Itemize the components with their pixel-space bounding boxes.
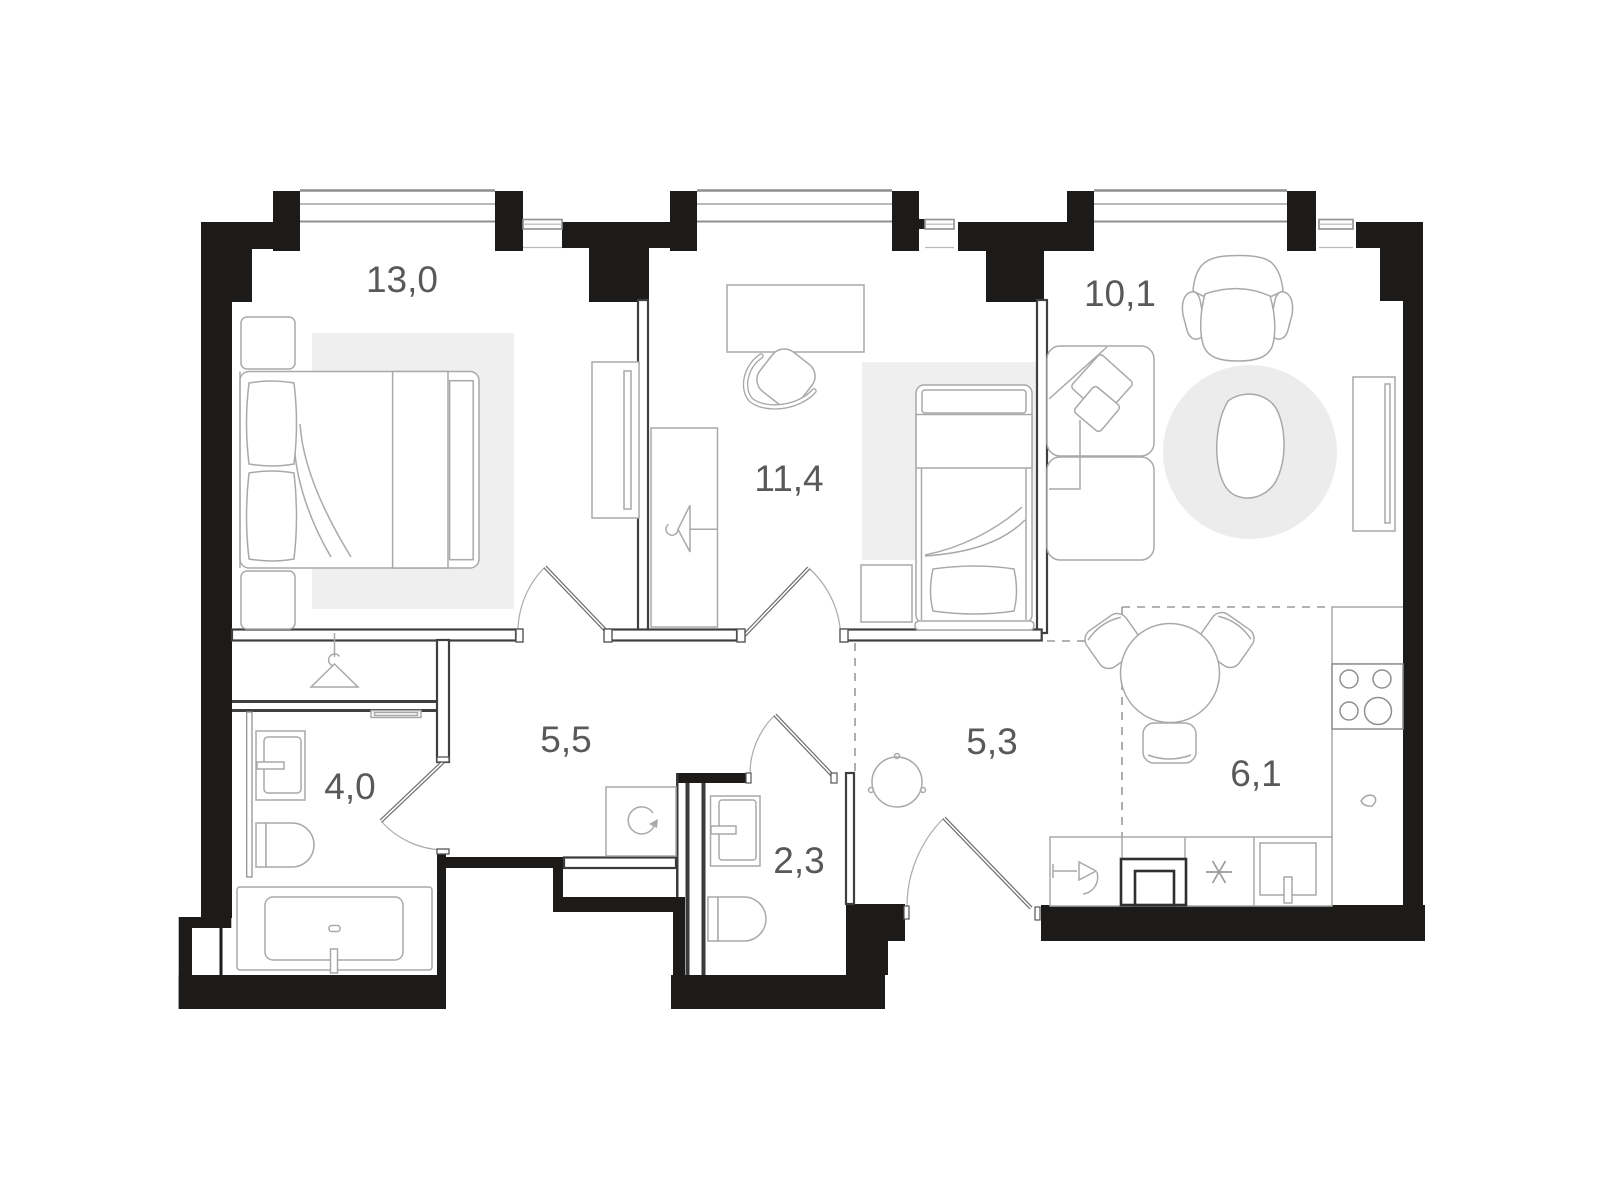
svg-text:4,0: 4,0	[324, 766, 375, 807]
svg-text:10,1: 10,1	[1084, 273, 1156, 314]
svg-text:11,4: 11,4	[754, 458, 823, 499]
svg-text:6,1: 6,1	[1230, 753, 1281, 794]
svg-text:5,3: 5,3	[966, 721, 1017, 762]
svg-text:5,5: 5,5	[540, 719, 591, 760]
svg-text:2,3: 2,3	[773, 840, 824, 881]
svg-text:13,0: 13,0	[366, 259, 438, 300]
